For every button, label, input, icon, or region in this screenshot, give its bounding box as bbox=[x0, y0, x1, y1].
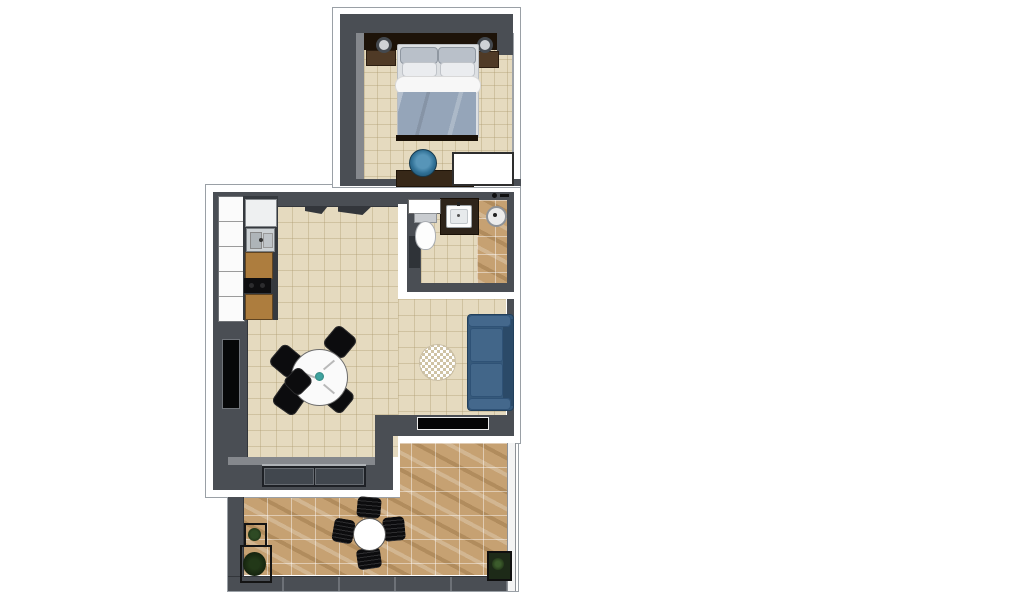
footboard bbox=[396, 135, 478, 141]
sofa-armrest-bottom bbox=[468, 398, 511, 410]
cutlery-icon bbox=[323, 360, 335, 371]
floor-plan-canvas bbox=[0, 0, 1024, 603]
cooktop bbox=[244, 278, 271, 293]
vanity-basin bbox=[446, 205, 472, 228]
table-lamp-right-icon bbox=[477, 37, 493, 53]
shower-fixture-icon bbox=[492, 193, 497, 198]
duvet bbox=[398, 92, 476, 135]
balcony-window bbox=[262, 464, 366, 487]
sofa-armrest-top bbox=[468, 315, 511, 327]
pillow bbox=[402, 62, 437, 77]
bathroom-gap-left bbox=[398, 204, 407, 299]
sofa-cushion bbox=[470, 363, 503, 397]
window-pane bbox=[265, 469, 313, 484]
bathroom-wall-bottom bbox=[407, 283, 514, 292]
cutlery-icon bbox=[323, 384, 335, 395]
outdoor-chair-north bbox=[356, 496, 382, 519]
shower-bar-icon bbox=[500, 194, 509, 197]
living-step-wall bbox=[375, 415, 393, 490]
planter-large bbox=[240, 545, 272, 583]
round-rug bbox=[419, 344, 456, 381]
bedroom-wall-top bbox=[340, 14, 513, 33]
faucet-icon bbox=[457, 202, 460, 206]
plant-icon bbox=[492, 558, 504, 570]
plant-icon bbox=[248, 528, 261, 541]
desk-chair bbox=[409, 149, 437, 177]
window-pane bbox=[316, 469, 364, 484]
sofa-cushion bbox=[470, 328, 503, 362]
faucet-icon bbox=[259, 238, 263, 242]
kitchen-sink bbox=[246, 228, 275, 252]
refrigerator bbox=[245, 199, 277, 227]
planter-right bbox=[487, 551, 512, 581]
burner-icon bbox=[260, 283, 265, 288]
window-strip bbox=[417, 417, 489, 430]
sofa-backrest bbox=[503, 319, 513, 406]
wall-tv bbox=[222, 339, 240, 409]
pillow bbox=[440, 62, 475, 77]
table-lamp-left-icon bbox=[376, 37, 392, 53]
drain-dot-icon bbox=[493, 213, 497, 217]
base-cabinet-2 bbox=[245, 294, 273, 320]
closet bbox=[452, 152, 514, 186]
outdoor-chair-west bbox=[331, 517, 356, 544]
bathroom-gap-bottom bbox=[398, 292, 514, 299]
burner-icon bbox=[249, 283, 254, 288]
centerpiece-icon bbox=[315, 372, 324, 381]
toilet-bowl bbox=[415, 221, 436, 250]
kitchen-upper-cabinets bbox=[218, 196, 245, 322]
base-cabinet-1 bbox=[245, 252, 273, 279]
planter-small bbox=[244, 523, 267, 547]
bathroom-shelf bbox=[408, 199, 441, 214]
shower-drain bbox=[486, 206, 507, 227]
plant-icon bbox=[243, 552, 266, 576]
sofa bbox=[467, 314, 514, 411]
basin-drain-icon bbox=[457, 214, 460, 217]
bedroom-wall-corner-face bbox=[497, 14, 513, 55]
sink-drainer bbox=[263, 233, 273, 248]
bedroom-wall-left-face bbox=[356, 33, 364, 179]
outdoor-table bbox=[353, 518, 386, 551]
